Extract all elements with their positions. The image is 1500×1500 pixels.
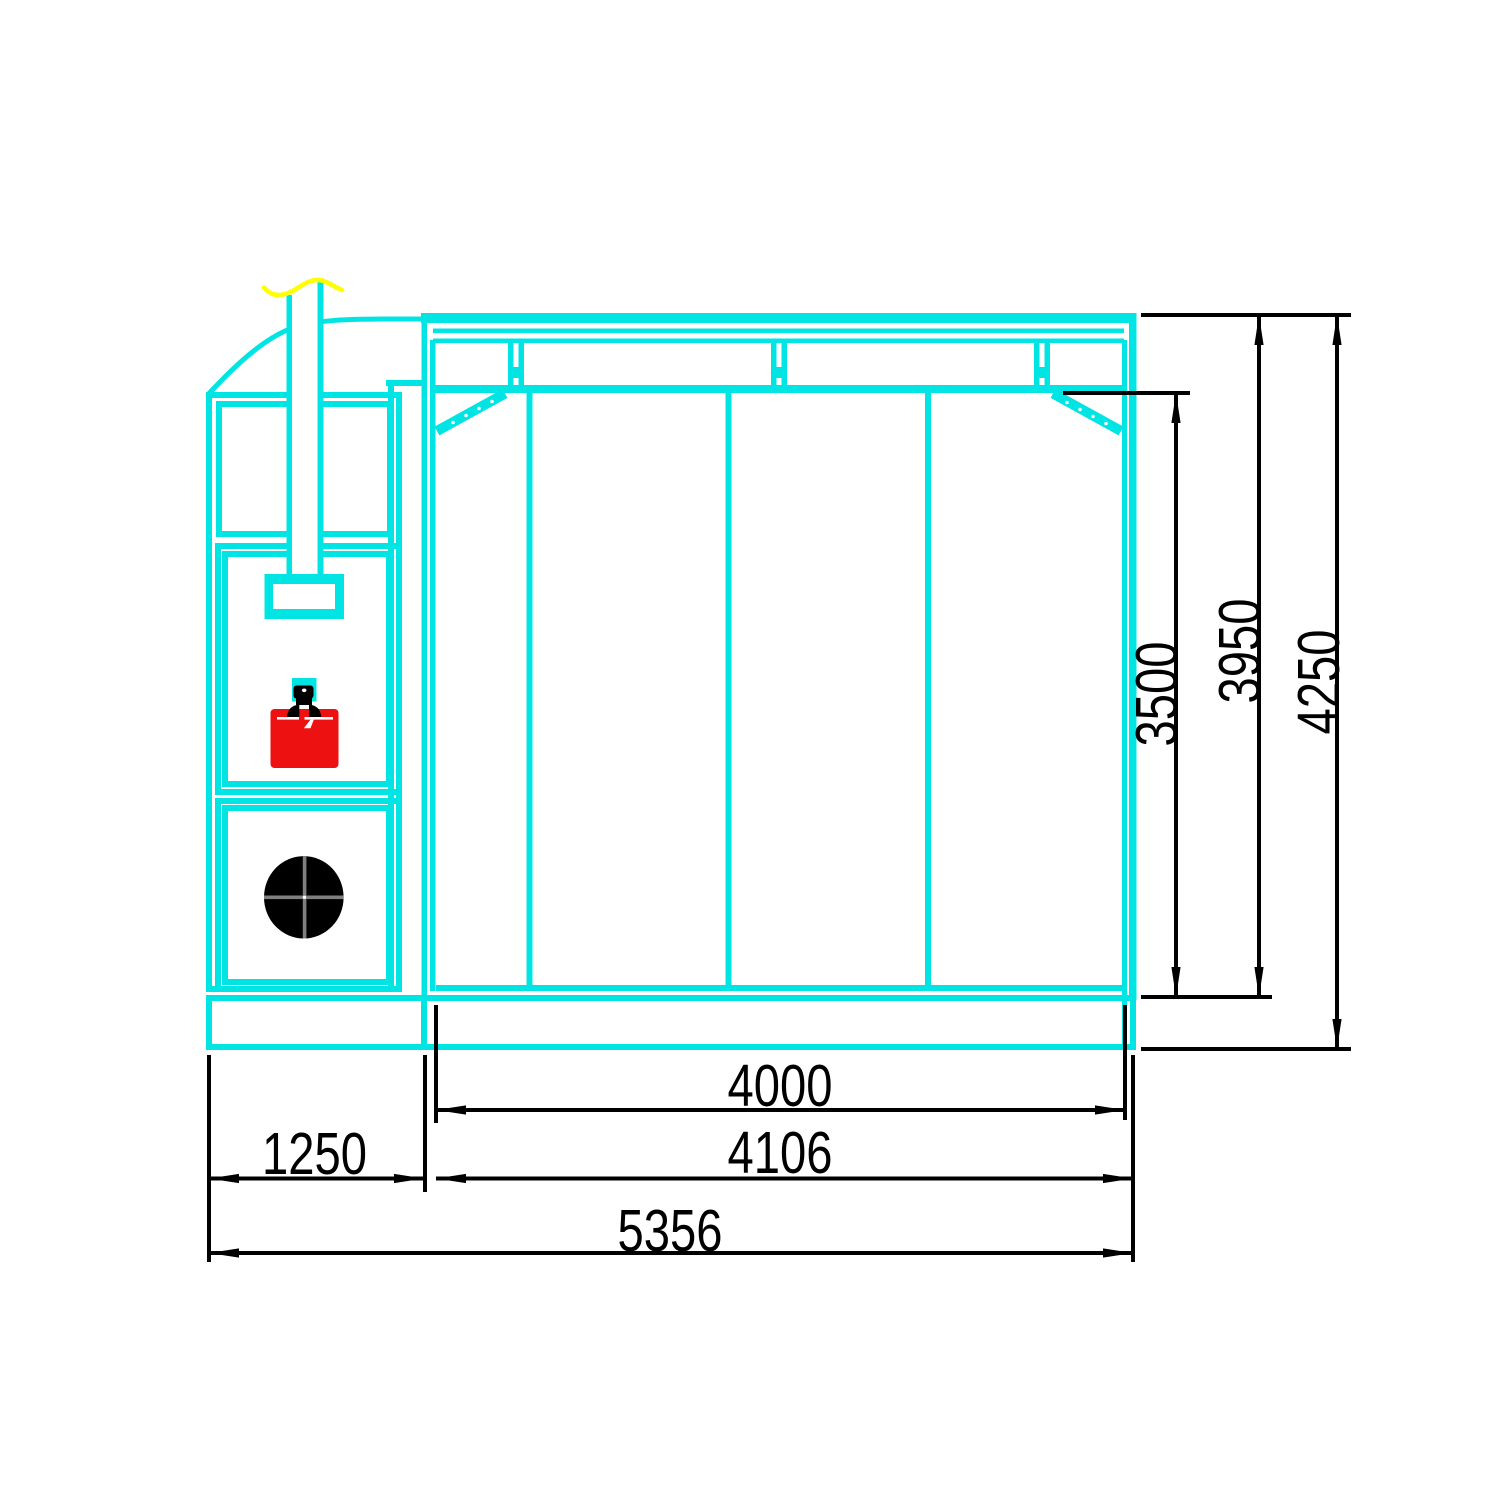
svg-text:3500: 3500 xyxy=(1124,642,1190,747)
svg-text:5356: 5356 xyxy=(618,1198,723,1264)
svg-text:4106: 4106 xyxy=(728,1120,833,1186)
svg-text:3950: 3950 xyxy=(1207,599,1273,704)
svg-text:4000: 4000 xyxy=(728,1053,833,1119)
svg-text:4250: 4250 xyxy=(1286,630,1352,735)
svg-text:1250: 1250 xyxy=(262,1121,367,1187)
